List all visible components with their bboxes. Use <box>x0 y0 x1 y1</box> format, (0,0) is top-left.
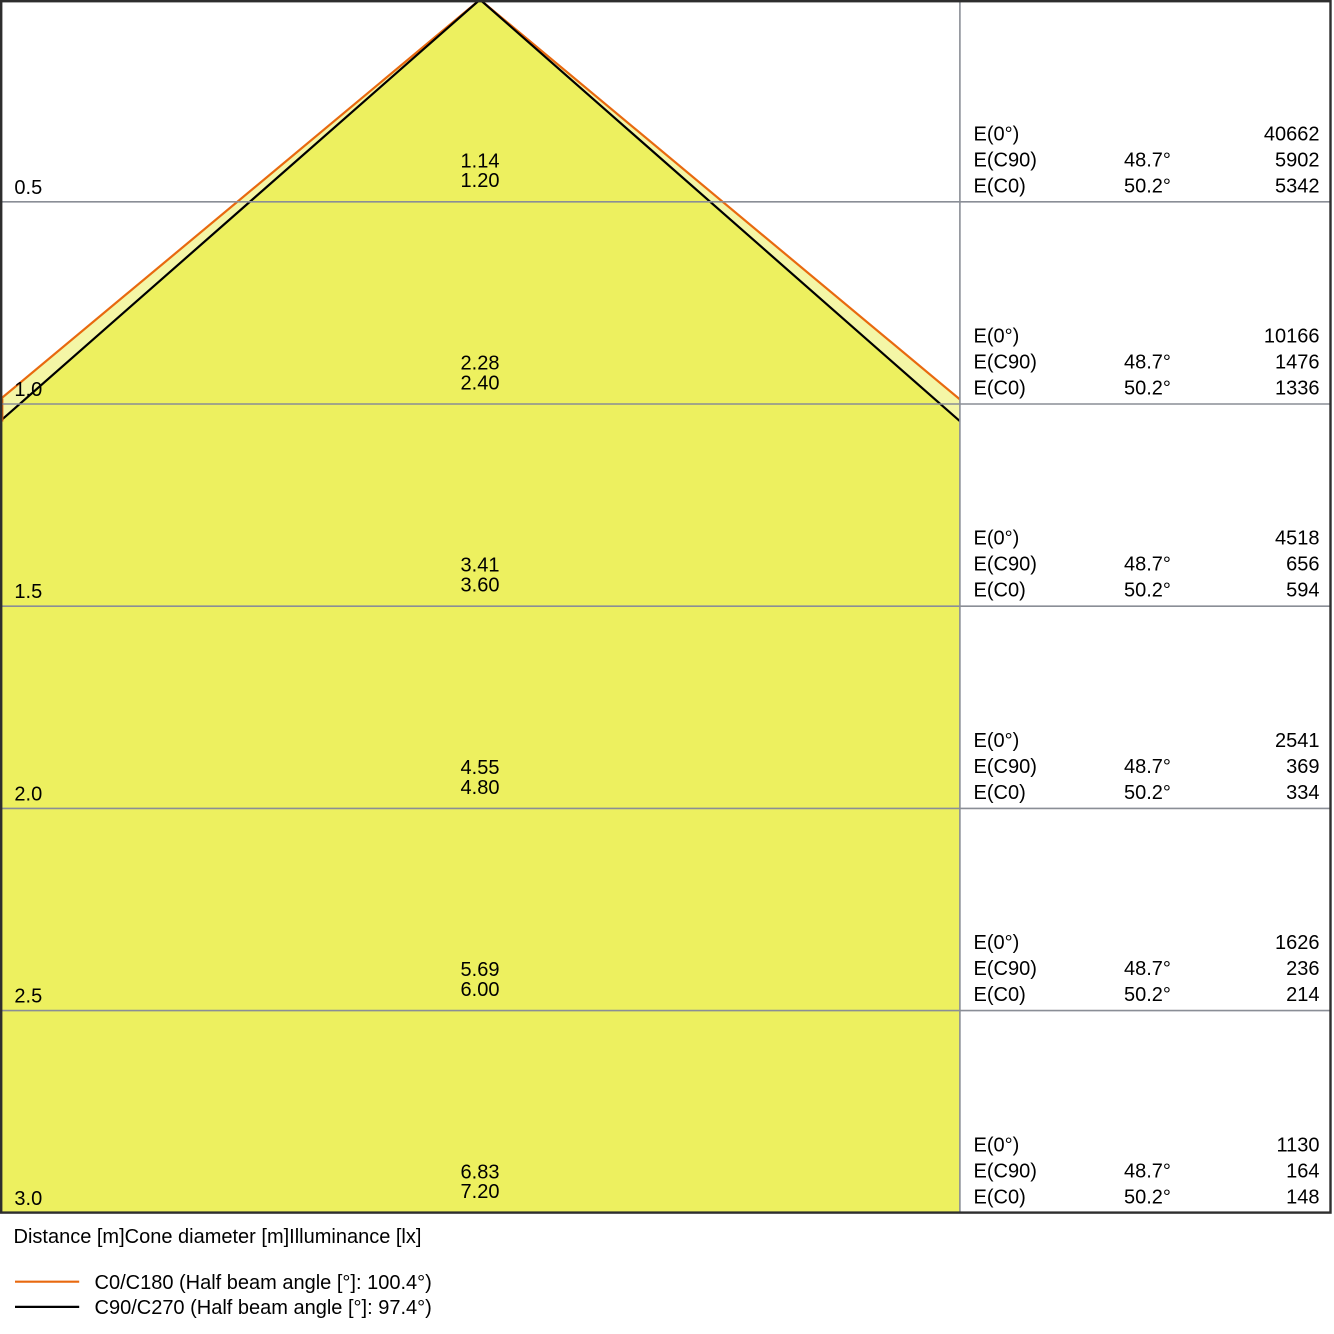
svg-text:50.2°: 50.2° <box>1124 782 1171 804</box>
svg-text:4.55: 4.55 <box>461 757 500 779</box>
svg-text:48.7°: 48.7° <box>1124 352 1171 374</box>
svg-text:6.00: 6.00 <box>461 979 500 1001</box>
svg-text:2.40: 2.40 <box>461 372 500 394</box>
svg-text:50.2°: 50.2° <box>1124 1186 1171 1208</box>
svg-text:C90/C270 (Half beam angle [°]:: C90/C270 (Half beam angle [°]: 97.4°) <box>95 1297 432 1319</box>
svg-text:3.41: 3.41 <box>461 555 500 577</box>
svg-text:1336: 1336 <box>1275 378 1320 400</box>
svg-text:E(C0): E(C0) <box>974 782 1026 804</box>
svg-text:1626: 1626 <box>1275 932 1320 954</box>
svg-text:5.69: 5.69 <box>461 959 500 981</box>
svg-text:E(0°): E(0°) <box>974 326 1020 348</box>
svg-text:2.0: 2.0 <box>14 783 42 805</box>
svg-text:4.80: 4.80 <box>461 777 500 799</box>
svg-text:E(C0): E(C0) <box>974 378 1026 400</box>
svg-text:48.7°: 48.7° <box>1124 149 1171 171</box>
svg-text:334: 334 <box>1286 782 1319 804</box>
svg-text:0.5: 0.5 <box>14 177 42 199</box>
svg-text:E(C90): E(C90) <box>974 352 1037 374</box>
svg-text:48.7°: 48.7° <box>1124 756 1171 778</box>
svg-text:E(0°): E(0°) <box>974 1134 1020 1156</box>
svg-text:E(0°): E(0°) <box>974 528 1020 550</box>
svg-text:C0/C180 (Half beam angle [°]:: C0/C180 (Half beam angle [°]: 100.4°) <box>95 1272 432 1294</box>
svg-text:E(C90): E(C90) <box>974 1160 1037 1182</box>
svg-text:656: 656 <box>1286 554 1319 576</box>
svg-text:164: 164 <box>1286 1160 1319 1182</box>
svg-text:E(C90): E(C90) <box>974 554 1037 576</box>
svg-text:Distance [m]Cone diameter [m]I: Distance [m]Cone diameter [m]Illuminance… <box>14 1226 422 1248</box>
svg-text:E(C0): E(C0) <box>974 1186 1026 1208</box>
svg-text:3.0: 3.0 <box>14 1188 42 1210</box>
svg-text:48.7°: 48.7° <box>1124 1160 1171 1182</box>
svg-text:E(C90): E(C90) <box>974 756 1037 778</box>
svg-text:50.2°: 50.2° <box>1124 984 1171 1006</box>
svg-text:2541: 2541 <box>1275 730 1320 752</box>
svg-text:50.2°: 50.2° <box>1124 580 1171 602</box>
svg-text:2.5: 2.5 <box>14 986 42 1008</box>
svg-text:10166: 10166 <box>1264 326 1320 348</box>
svg-text:1.14: 1.14 <box>461 150 500 172</box>
svg-text:214: 214 <box>1286 984 1319 1006</box>
svg-text:3.60: 3.60 <box>461 575 500 597</box>
svg-text:369: 369 <box>1286 756 1319 778</box>
svg-text:594: 594 <box>1286 580 1319 602</box>
svg-text:2.28: 2.28 <box>461 353 500 375</box>
svg-text:E(0°): E(0°) <box>974 932 1020 954</box>
svg-text:E(C0): E(C0) <box>974 175 1026 197</box>
svg-text:E(0°): E(0°) <box>974 123 1020 145</box>
svg-text:6.83: 6.83 <box>461 1161 500 1183</box>
svg-text:1.20: 1.20 <box>461 170 500 192</box>
svg-text:1.0: 1.0 <box>14 379 42 401</box>
svg-text:4518: 4518 <box>1275 528 1320 550</box>
svg-text:48.7°: 48.7° <box>1124 958 1171 980</box>
svg-text:E(C90): E(C90) <box>974 149 1037 171</box>
svg-text:E(C0): E(C0) <box>974 984 1026 1006</box>
svg-text:1476: 1476 <box>1275 352 1320 374</box>
svg-text:5902: 5902 <box>1275 149 1320 171</box>
svg-text:E(0°): E(0°) <box>974 730 1020 752</box>
svg-text:E(C90): E(C90) <box>974 958 1037 980</box>
svg-text:7.20: 7.20 <box>461 1181 500 1203</box>
svg-text:148: 148 <box>1286 1186 1319 1208</box>
svg-text:48.7°: 48.7° <box>1124 554 1171 576</box>
svg-text:1.5: 1.5 <box>14 581 42 603</box>
svg-text:236: 236 <box>1286 958 1319 980</box>
svg-text:E(C0): E(C0) <box>974 580 1026 602</box>
svg-text:1130: 1130 <box>1276 1134 1319 1156</box>
svg-text:50.2°: 50.2° <box>1124 175 1171 197</box>
svg-text:5342: 5342 <box>1275 175 1320 197</box>
svg-text:40662: 40662 <box>1264 123 1320 145</box>
svg-text:50.2°: 50.2° <box>1124 378 1171 400</box>
